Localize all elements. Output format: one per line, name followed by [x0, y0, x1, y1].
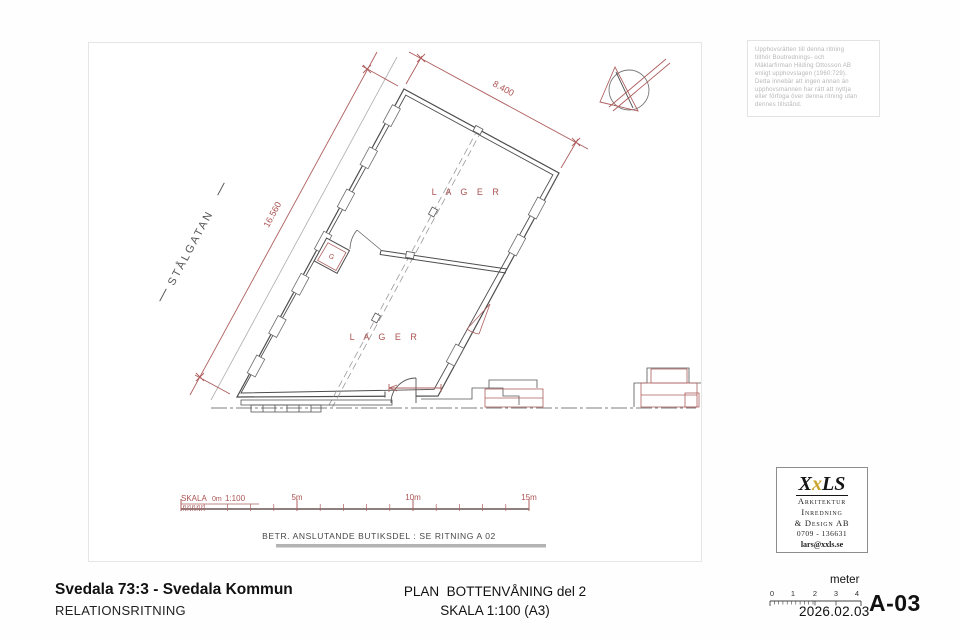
- street-label: STÅLGATAN: [165, 208, 216, 288]
- logo-email: lars@xxls.se: [777, 540, 867, 551]
- street-label-group: STÅLGATAN: [160, 183, 225, 301]
- copyright-line: tillhör Boutrednings- och: [755, 55, 872, 63]
- north-arrow-icon: [600, 59, 670, 111]
- sheet-number: A-03: [869, 590, 921, 617]
- copyright-line: Detta innebär att ingen annan än: [755, 79, 872, 87]
- logo-letter-x1: X: [799, 473, 812, 495]
- ruler-tick-4: 4: [855, 589, 859, 598]
- drawing-date: 2026.02.03: [799, 604, 870, 619]
- dim-top-value: 8.400: [491, 79, 516, 99]
- ruler-tick-0: 0: [770, 589, 774, 598]
- copyright-line: upphovsmannen har rätt att nyttja: [755, 87, 872, 95]
- exterior-red-structures: [485, 369, 699, 407]
- plan-scale: SKALA 1:100 (A3): [350, 603, 640, 618]
- logo-line-designab: & Design AB: [777, 518, 867, 529]
- drawing-page: { "sheet": { "plan": { "dim_top": "8.400…: [0, 0, 960, 640]
- plan-title: PLAN BOTTENVÅNING del 2: [350, 584, 640, 599]
- ruler-tick-3: 3: [834, 589, 838, 598]
- project-title: Svedala 73:3 - Svedala Kommun: [55, 581, 293, 599]
- scale-bar-15m: 15m: [521, 493, 537, 502]
- logo-letter-x2: x: [812, 473, 822, 495]
- logo-line-arkitektur: Arkitektur: [777, 496, 867, 507]
- logo-line-inredning: Inredning: [777, 507, 867, 518]
- logo-wordmark: XxLS: [796, 474, 849, 496]
- copyright-line: Upphovsrätten till denna ritning: [755, 47, 872, 55]
- copyright-notice: Upphovsrätten till denna ritning tillhör…: [747, 40, 880, 117]
- scale-bar: SKALA 0m 1:100 5m 10m 15m: [181, 493, 537, 511]
- room-label-lager-upper: L A G E R: [432, 187, 503, 197]
- ruler-unit-label: meter: [830, 574, 860, 586]
- logo-letters-ls: LS: [822, 473, 845, 495]
- copyright-line: Mäklarfirman Hilding Ottosson AB: [755, 63, 872, 71]
- ruler-tick-2: 2: [813, 589, 817, 598]
- logo-phone: 0709 - 136631: [777, 529, 867, 540]
- note-group: BETR. ANSLUTANDE BUTIKSDEL : SE RITNING …: [262, 531, 546, 548]
- room-label-lager-lower: L A G E R: [350, 332, 421, 342]
- copyright-line: dennes tillstånd.: [755, 102, 872, 110]
- ruler-tick-1: 1: [791, 589, 795, 598]
- building-walls: [237, 89, 559, 397]
- scale-bar-5m: 5m: [291, 493, 302, 502]
- document-type: RELATIONSRITNING: [55, 603, 186, 618]
- floor-plan-svg: STÅLGATAN 16.560 8.400: [89, 43, 701, 561]
- copyright-line: enligt upphovslagen (1960:729).: [755, 71, 872, 79]
- scale-bar-10m: 10m: [405, 493, 421, 502]
- drawing-sheet: STÅLGATAN 16.560 8.400: [88, 42, 702, 562]
- architect-logo-box: XxLS Arkitektur Inredning & Design AB 07…: [776, 467, 868, 553]
- dim-left-value: 16.560: [261, 200, 283, 229]
- scale-bar-zero: 0m: [212, 496, 222, 503]
- scale-bar-ratio: 1:100: [225, 494, 246, 503]
- scale-bar-skala: SKALA: [181, 494, 207, 503]
- note-text: BETR. ANSLUTANDE BUTIKSDEL : SE RITNING …: [262, 531, 496, 541]
